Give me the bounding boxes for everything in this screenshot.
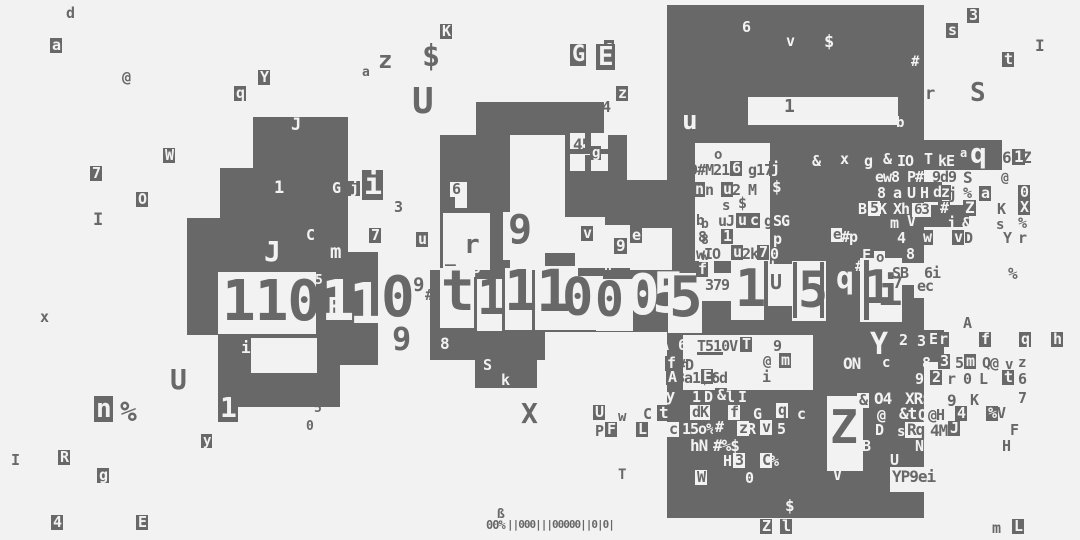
glyph: 8 [922,356,930,371]
glyph: 3 [917,334,925,349]
glyph: 4 [602,100,610,115]
glyph: $ [785,498,794,514]
glyph: I [1035,38,1044,54]
glyph: $ [770,179,783,195]
glyph: hN [690,438,707,454]
glyph: h [1051,332,1063,347]
glyph: b [696,214,703,228]
glyph: 6 [678,338,686,353]
glyph: U [593,405,605,420]
glyph: 0 [745,471,753,486]
glyph: D [964,231,972,246]
glyph: m [964,354,976,369]
glyph: ew8 [875,170,899,185]
glyph: E [596,44,615,70]
glyph: A [963,316,971,331]
glyph: q [1019,332,1031,347]
glyph: J [264,238,280,266]
glyph: r [937,332,949,347]
glyph: 9 [413,276,423,295]
glyph: # [911,55,918,69]
glyph: 5 [657,372,665,387]
glyph: n [693,182,705,197]
glyph: P# [907,170,923,185]
glyph: & [857,393,869,408]
glyph: 8 [438,336,451,352]
glyph: 2 [930,370,942,385]
noise-block [187,275,218,335]
glyph: 7 [90,166,102,181]
glyph: 5 [669,270,702,326]
glyph: 5 [777,422,785,437]
noise-block [220,168,348,218]
glyph: 6 [1018,372,1026,387]
glyph: i [762,370,770,385]
glyph: w [618,410,625,424]
glyph: 6 [742,20,750,35]
glyph: K [440,24,452,39]
glyph: l [780,519,792,534]
glyph: s [946,23,958,38]
glyph: 4 [51,515,63,530]
glyph: L [636,422,648,437]
glyph: 3 [733,453,745,468]
glyph: 7 [893,275,902,291]
glyph: 3 [938,354,950,369]
glyph: y [201,434,212,448]
glyph: 2 [897,333,909,348]
glyph: f [728,405,740,420]
glyph: v [581,226,593,241]
glyph: r [464,232,479,258]
glyph: x [838,152,850,167]
glyph: g [764,214,772,229]
glyph: g [864,154,872,169]
glyph: a [891,186,903,201]
glyph: ||000|||00000||0|0| [507,519,614,530]
glyph: ß [497,508,504,521]
glyph: z [616,86,628,101]
glyph: Z [830,404,857,450]
glyph: C [306,228,314,243]
glyph: o [714,148,721,162]
glyph: N [915,439,923,454]
glyph: U [170,366,186,394]
glyph: m [779,353,791,368]
glyph: i [362,170,383,200]
glyph: 110 [222,274,320,330]
glyph: c [797,407,805,422]
glyph: 1 [477,274,505,322]
glyph: a [979,186,991,201]
glyph: Z [760,519,772,534]
glyph: F [1010,423,1018,438]
glyph: T [618,468,625,482]
glyph: J [291,117,300,134]
glyph: B [328,295,343,321]
glyph: t [441,264,474,320]
glyph: dK [690,405,710,420]
glitch-noise-canvas: da@qYKza$UW7OIJ1Gji3Cm7uJ6g454zGaE6v$#3s… [0,0,1080,540]
glyph: X [1018,200,1030,215]
glyph: B [862,439,870,454]
glyph: S [481,358,493,373]
glyph: Xh [893,202,909,217]
glyph: q [776,403,788,418]
glyph: $ [824,34,833,51]
glyph: M [748,183,756,198]
glyph: 1 [274,180,283,197]
glyph: 1 [721,229,733,244]
glyph: B [858,202,866,217]
glyph: @ [122,70,130,85]
glyph: b [896,116,903,130]
glyph: % [120,398,136,426]
glyph: v [760,420,772,435]
glyph: i [241,340,250,356]
glyph: ON [843,356,860,372]
glyph: $ [422,42,439,72]
glyph: U [907,186,915,201]
glyph: U [890,453,898,468]
glyph: r [1018,231,1026,246]
glyph: 7 [1018,391,1026,406]
glyph: j [348,181,360,196]
glyph: E [136,515,148,530]
glyph: & [881,152,893,167]
glyph: z [1018,356,1025,370]
glyph: q [234,86,246,101]
glyph: Q@ [982,356,998,371]
glyph: d [66,6,74,21]
glyph: 8 [698,230,706,245]
glyph: % [770,454,778,469]
glyph: U [412,84,433,120]
glyph: I [93,212,102,229]
glyph: Y [1003,231,1011,246]
light-patch [251,338,317,373]
glyph: R [747,422,755,437]
glyph: j [948,187,956,202]
glyph: L [979,372,987,387]
glyph: 6 [730,161,742,176]
glyph: T [922,152,934,167]
glyph: r [947,372,955,387]
glyph: t [657,405,670,421]
glyph: 379 [705,278,729,293]
glyph: V [997,406,1005,421]
glyph: W [163,148,175,163]
glyph: s [897,425,904,439]
glyph: g [590,146,601,160]
light-patch [748,97,898,125]
glyph: 0 [306,420,313,433]
glyph: 1 [218,394,238,422]
glyph: n [94,396,113,422]
glyph: q [968,140,988,168]
glyph: z [378,48,391,72]
glyph: H [723,454,731,469]
glyph: a [960,147,966,159]
glyph: ec [915,279,935,294]
glyph: 1 [349,277,382,333]
glyph: 0 [963,372,971,387]
glyph: e [630,228,642,243]
glyph: 3 [394,200,402,215]
glyph: 0 [562,272,592,324]
grid-bar [793,262,797,318]
glyph: 1 [784,98,794,116]
glyph: L [1012,519,1024,534]
glyph: f [696,262,708,277]
glyph: K [997,202,1005,217]
glyph: & [812,154,820,169]
glyph: v [952,230,964,245]
glyph: K [970,393,978,408]
glyph: # [855,260,862,274]
glyph: W [695,470,707,485]
glyph: m [330,243,340,262]
glyph: q [836,264,853,294]
glyph: a [50,38,62,53]
glyph: s [722,199,729,213]
glyph: I [738,390,746,405]
noise-block [476,102,604,135]
glyph: # [713,420,725,435]
glyph: n [705,183,713,198]
glyph: t [1002,52,1014,67]
glyph: N9#M21 [681,163,729,178]
glyph: 63 [912,203,931,217]
glyph: 0 [381,270,414,326]
glyph: 1 [735,263,765,315]
glyph: H [920,186,928,201]
glyph: g [97,468,109,483]
glyph: U [770,272,781,292]
glyph: h [604,260,611,273]
glyph: X [521,400,537,428]
glyph: # [938,201,950,216]
glyph: Z [963,200,976,216]
glyph: # [425,288,433,303]
glyph: 9 [614,238,627,254]
glyph: v [786,34,794,49]
glyph: I [11,453,19,468]
glyph: 5 [798,265,827,315]
glyph: r [925,86,934,103]
glyph: YP9ei [892,469,935,485]
glyph: F [605,422,617,437]
glyph: 6 [1002,150,1011,166]
glyph: SG [773,214,789,229]
glyph: 7 [369,228,381,243]
glyph: c [882,356,889,370]
glyph: 1 [504,264,537,320]
glyph: 4M [930,423,947,439]
glyph: @ [763,355,770,369]
glyph: a [362,66,369,79]
glyph: t [1002,370,1014,385]
glyph: w [921,230,933,245]
glyph: j [769,161,781,176]
glyph: 5 [955,356,963,371]
glyph: IO [897,154,913,169]
glyph: Z [1022,150,1031,166]
glyph: 6d [711,371,727,386]
glyph: T [740,337,752,352]
glyph: 8 [906,247,914,262]
glyph: 9 [915,372,923,387]
glyph: R [58,450,70,465]
glyph: V [833,468,841,483]
glyph: O [136,192,148,207]
glyph: 6 [450,182,462,197]
glyph: K [878,202,886,217]
glyph: #p [841,230,857,245]
glyph: u [682,108,697,134]
glyph: u [736,213,748,228]
glyph: 4 [897,231,905,246]
glyph: S [970,80,985,106]
glyph: c [667,422,679,437]
glyph: u [416,232,428,247]
glyph: J [948,421,960,436]
glyph: T510V [697,339,737,354]
glyph: Rq [905,422,926,438]
glyph: x [40,310,48,325]
noise-block [253,117,348,168]
glyph: G [330,181,342,196]
glyph: f [979,332,991,347]
glyph: Y [258,70,270,85]
glyph: P [595,424,603,439]
glyph: 0 [595,276,623,324]
glyph: @ [1001,172,1008,185]
glyph: A [660,338,668,353]
glyph: 5 [314,402,321,415]
glyph: 3 [967,8,979,23]
glyph: k [501,373,509,388]
glyph: B [553,340,561,355]
glyph: % [1008,266,1017,282]
glyph: kE [938,154,954,169]
glyph: $ [738,196,746,211]
glyph: 9 [392,323,410,355]
glyph: O4 [874,391,891,407]
glyph: D [875,423,883,438]
glyph: m [992,521,1000,536]
glyph: G [570,44,586,66]
glyph: 2y [657,388,674,404]
glyph: H [1002,439,1010,454]
glyph: 9 [773,339,781,354]
glyph: c [748,213,760,228]
glyph: 45 [573,137,590,153]
glyph: 9 [508,210,531,250]
